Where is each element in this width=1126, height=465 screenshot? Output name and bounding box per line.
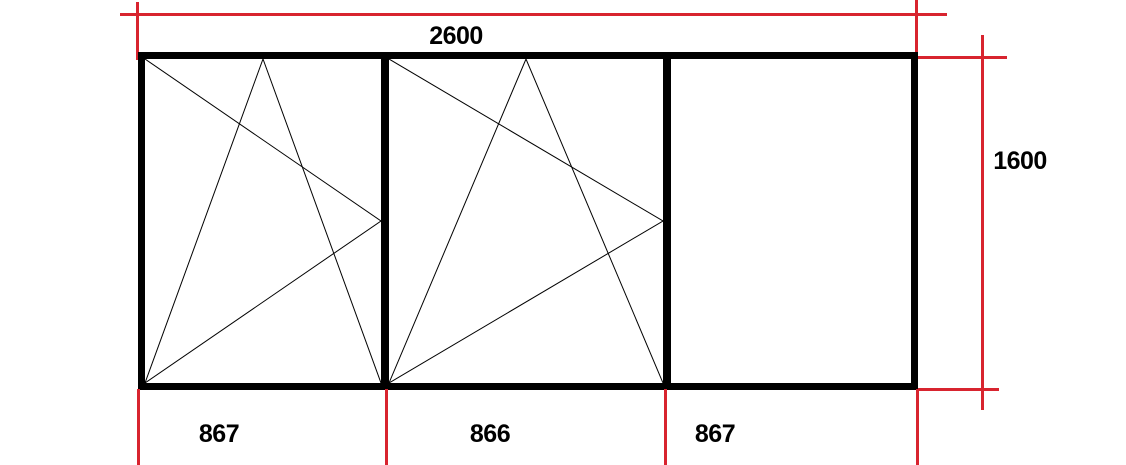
panel-width-label-1: 867 xyxy=(169,424,269,444)
tilt-turn-symbol-panel-1 xyxy=(145,59,381,383)
top-dimension-tick-right xyxy=(915,0,918,58)
right-dimension-tick-bottom xyxy=(918,388,999,391)
right-dimension-line xyxy=(981,35,984,410)
total-width-label: 2600 xyxy=(406,26,506,46)
bottom-extension-line-1 xyxy=(137,389,140,465)
right-dimension-tick-top xyxy=(918,56,1007,59)
total-height-label: 1600 xyxy=(970,151,1070,171)
panel-width-label-2: 866 xyxy=(440,424,540,444)
top-dimension-line xyxy=(120,13,947,16)
mullion-1 xyxy=(381,59,389,383)
fixed-panel-area xyxy=(671,59,911,383)
tilt-turn-symbol-panel-2 xyxy=(389,59,663,383)
mullion-2 xyxy=(663,59,671,383)
panel-width-label-3: 867 xyxy=(665,424,765,444)
window-technical-drawing: 2600 1600 867 866 867 xyxy=(0,0,1126,465)
bottom-extension-line-4 xyxy=(916,389,919,465)
bottom-extension-line-2 xyxy=(385,389,388,465)
